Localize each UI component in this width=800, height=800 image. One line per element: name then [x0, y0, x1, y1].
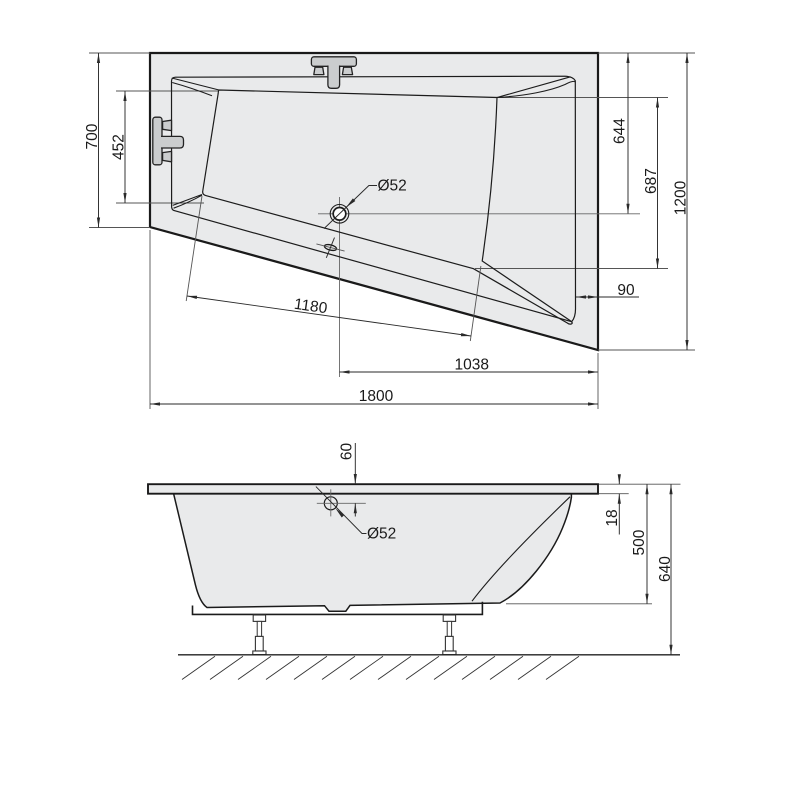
svg-text:644: 644 — [612, 118, 629, 144]
svg-text:1800: 1800 — [359, 388, 394, 405]
svg-text:1038: 1038 — [455, 357, 489, 374]
svg-text:Ø52: Ø52 — [378, 178, 407, 195]
svg-text:18: 18 — [604, 509, 621, 526]
svg-text:90: 90 — [617, 282, 635, 299]
svg-text:640: 640 — [657, 556, 674, 582]
svg-text:500: 500 — [631, 529, 648, 555]
svg-text:Ø52: Ø52 — [367, 526, 396, 543]
svg-text:1200: 1200 — [673, 180, 690, 215]
svg-text:60: 60 — [339, 443, 356, 461]
svg-text:452: 452 — [111, 134, 128, 160]
svg-text:687: 687 — [643, 168, 660, 194]
svg-text:700: 700 — [84, 123, 101, 149]
svg-text:1180: 1180 — [293, 296, 329, 318]
